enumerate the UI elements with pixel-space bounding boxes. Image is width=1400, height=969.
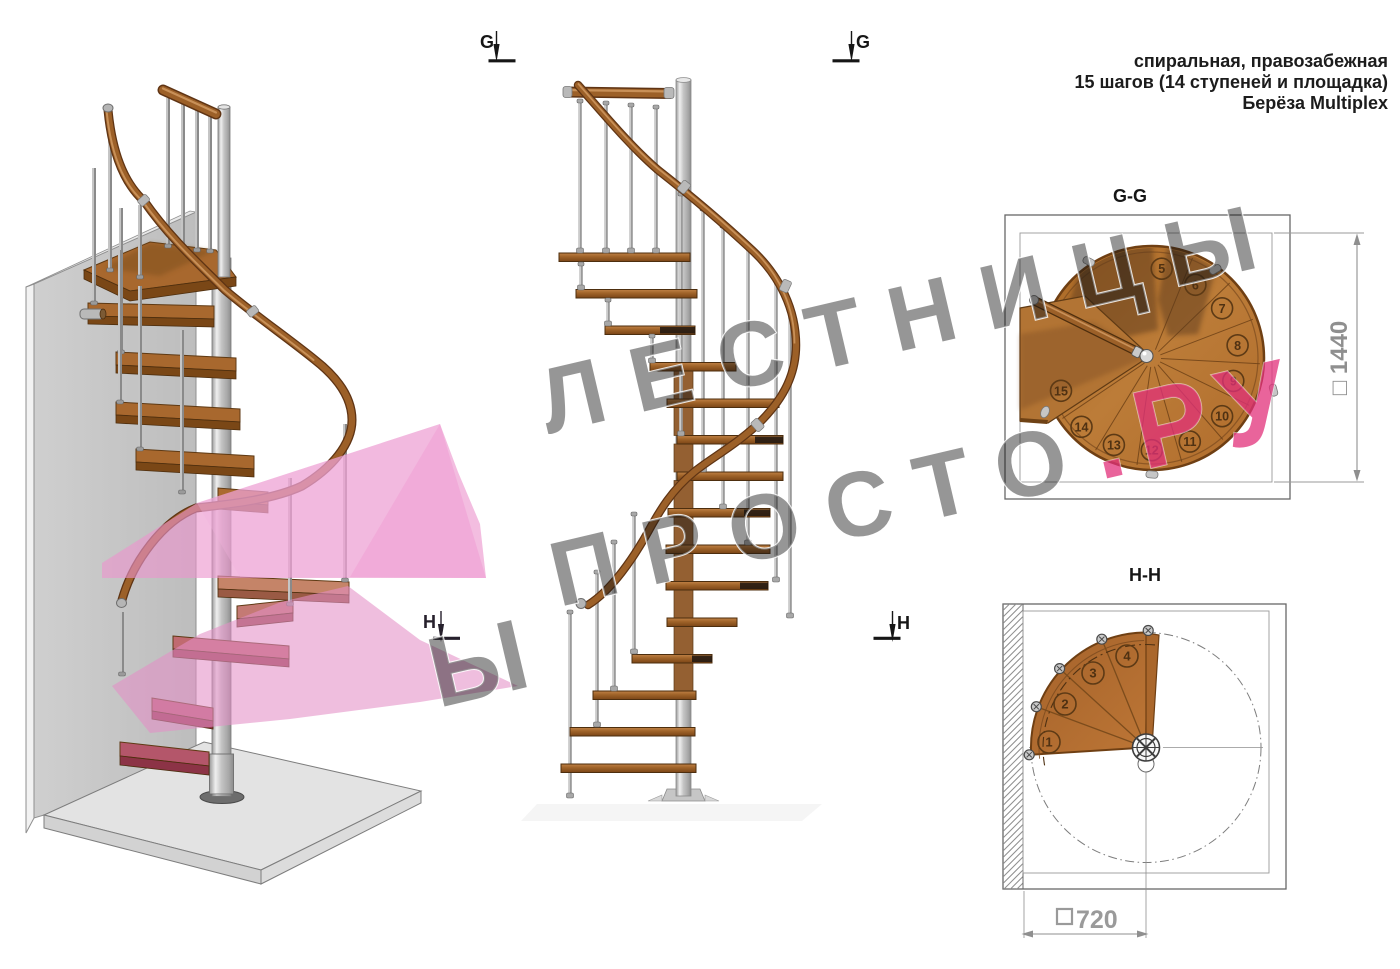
svg-text:7: 7	[1219, 302, 1226, 316]
svg-text:1: 1	[1045, 735, 1052, 750]
svg-text:15: 15	[1054, 384, 1068, 398]
svg-text:G-G: G-G	[1113, 186, 1147, 206]
svg-text:2: 2	[1061, 697, 1068, 712]
svg-text:G: G	[856, 32, 870, 52]
svg-text:3: 3	[1089, 666, 1096, 681]
svg-text:720: 720	[1076, 906, 1118, 934]
svg-text:□ 1440: □ 1440	[1326, 321, 1353, 396]
svg-text:Берёза Multiplex: Берёза Multiplex	[1242, 93, 1388, 113]
svg-text:H-H: H-H	[1129, 565, 1161, 585]
svg-text:H: H	[897, 613, 910, 633]
svg-text:4: 4	[1123, 649, 1131, 664]
svg-text:спиральная, правозабежная: спиральная, правозабежная	[1134, 51, 1388, 71]
svg-text:15 шагов (14 ступеней и площад: 15 шагов (14 ступеней и площадка)	[1075, 72, 1388, 92]
svg-text:G: G	[480, 32, 494, 52]
